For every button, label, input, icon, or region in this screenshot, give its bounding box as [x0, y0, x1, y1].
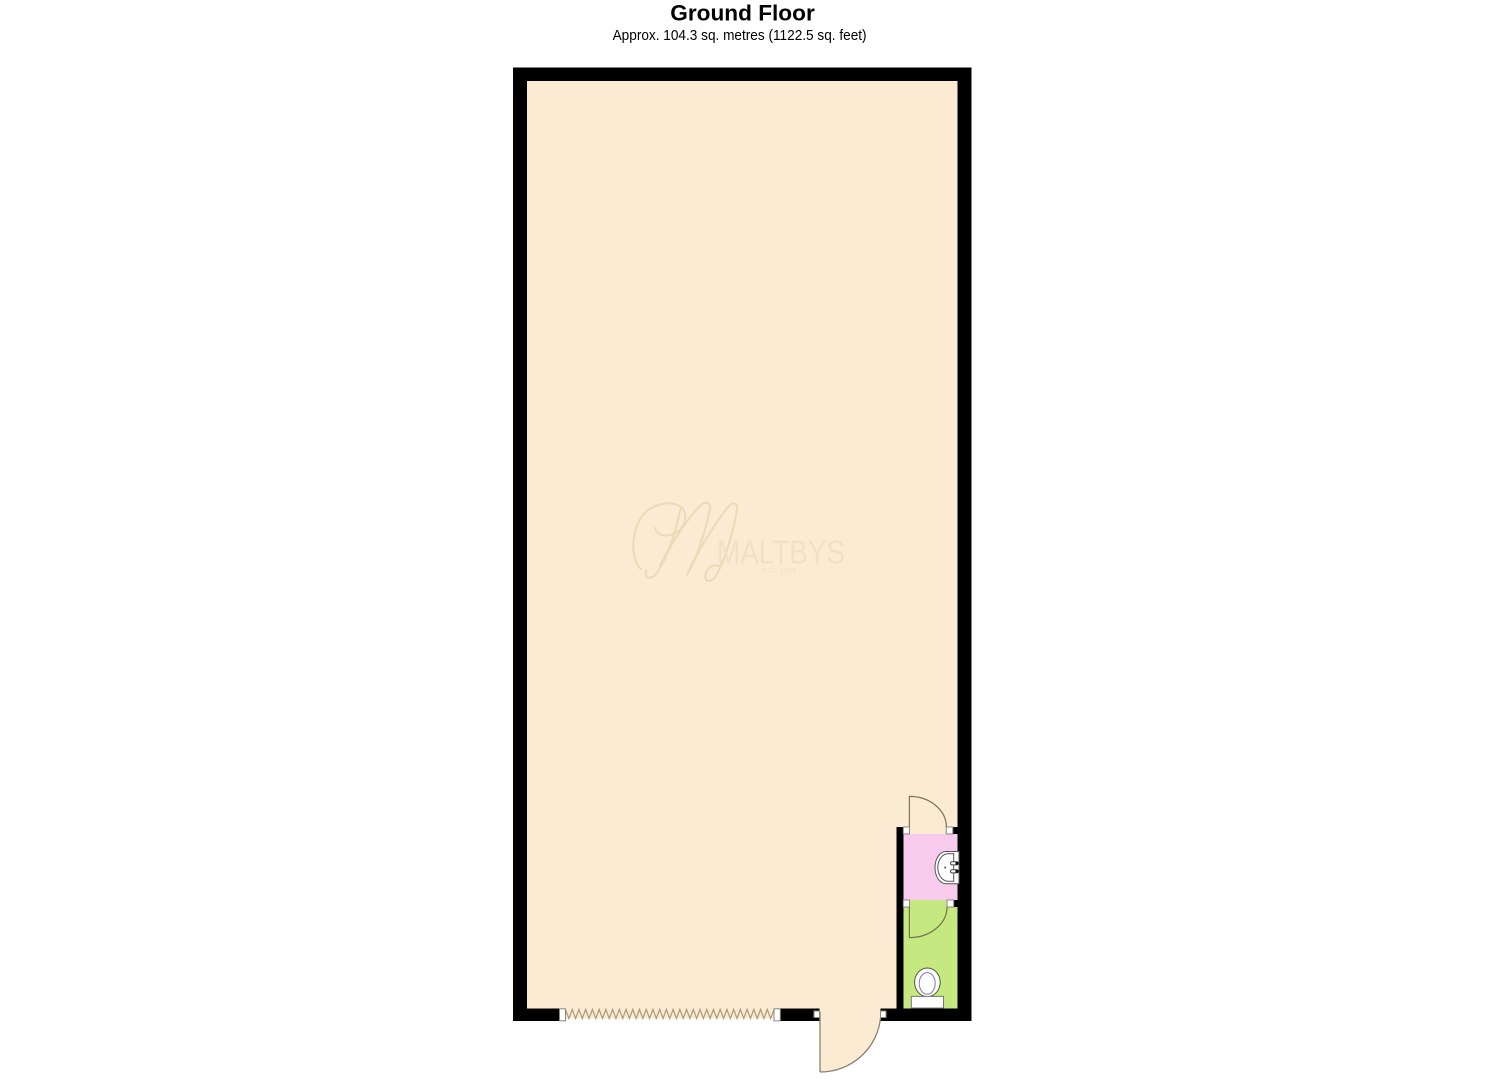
- svg-text:MALTBYS: MALTBYS: [717, 534, 845, 571]
- svg-text:Approx. 104.3 sq. metres (1122: Approx. 104.3 sq. metres (1122.5 sq. fee…: [613, 27, 867, 44]
- svg-text:Ground Floor: Ground Floor: [670, 1, 815, 26]
- svg-text:EST. 1904: EST. 1904: [762, 568, 796, 575]
